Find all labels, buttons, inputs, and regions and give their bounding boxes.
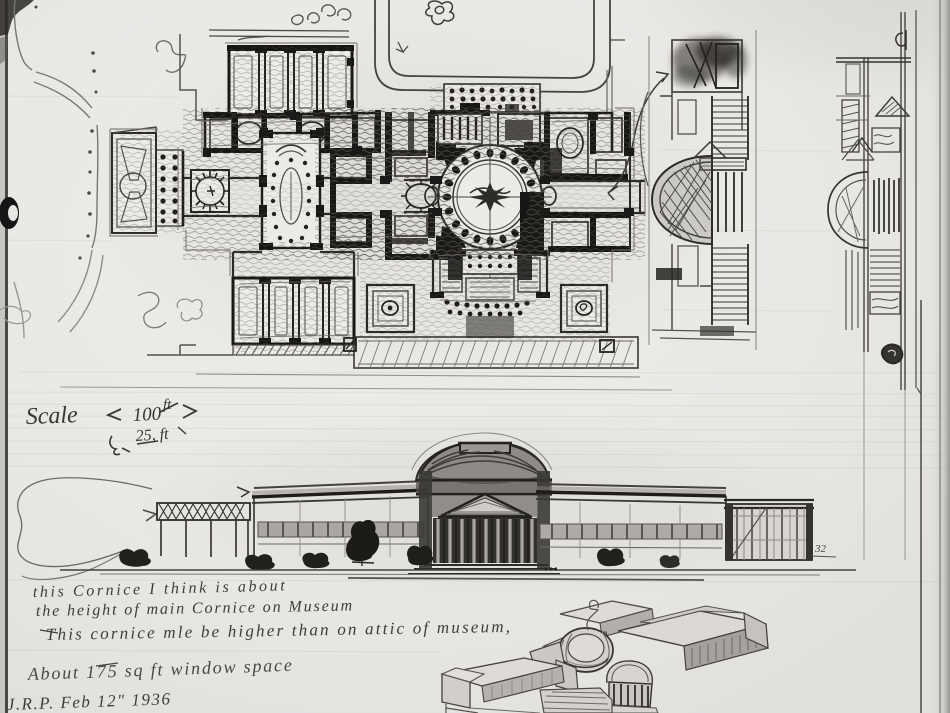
svg-text:32: 32 [814,543,827,555]
svg-text:Scale: Scale [25,402,78,430]
svg-text:100: 100 [132,404,162,426]
